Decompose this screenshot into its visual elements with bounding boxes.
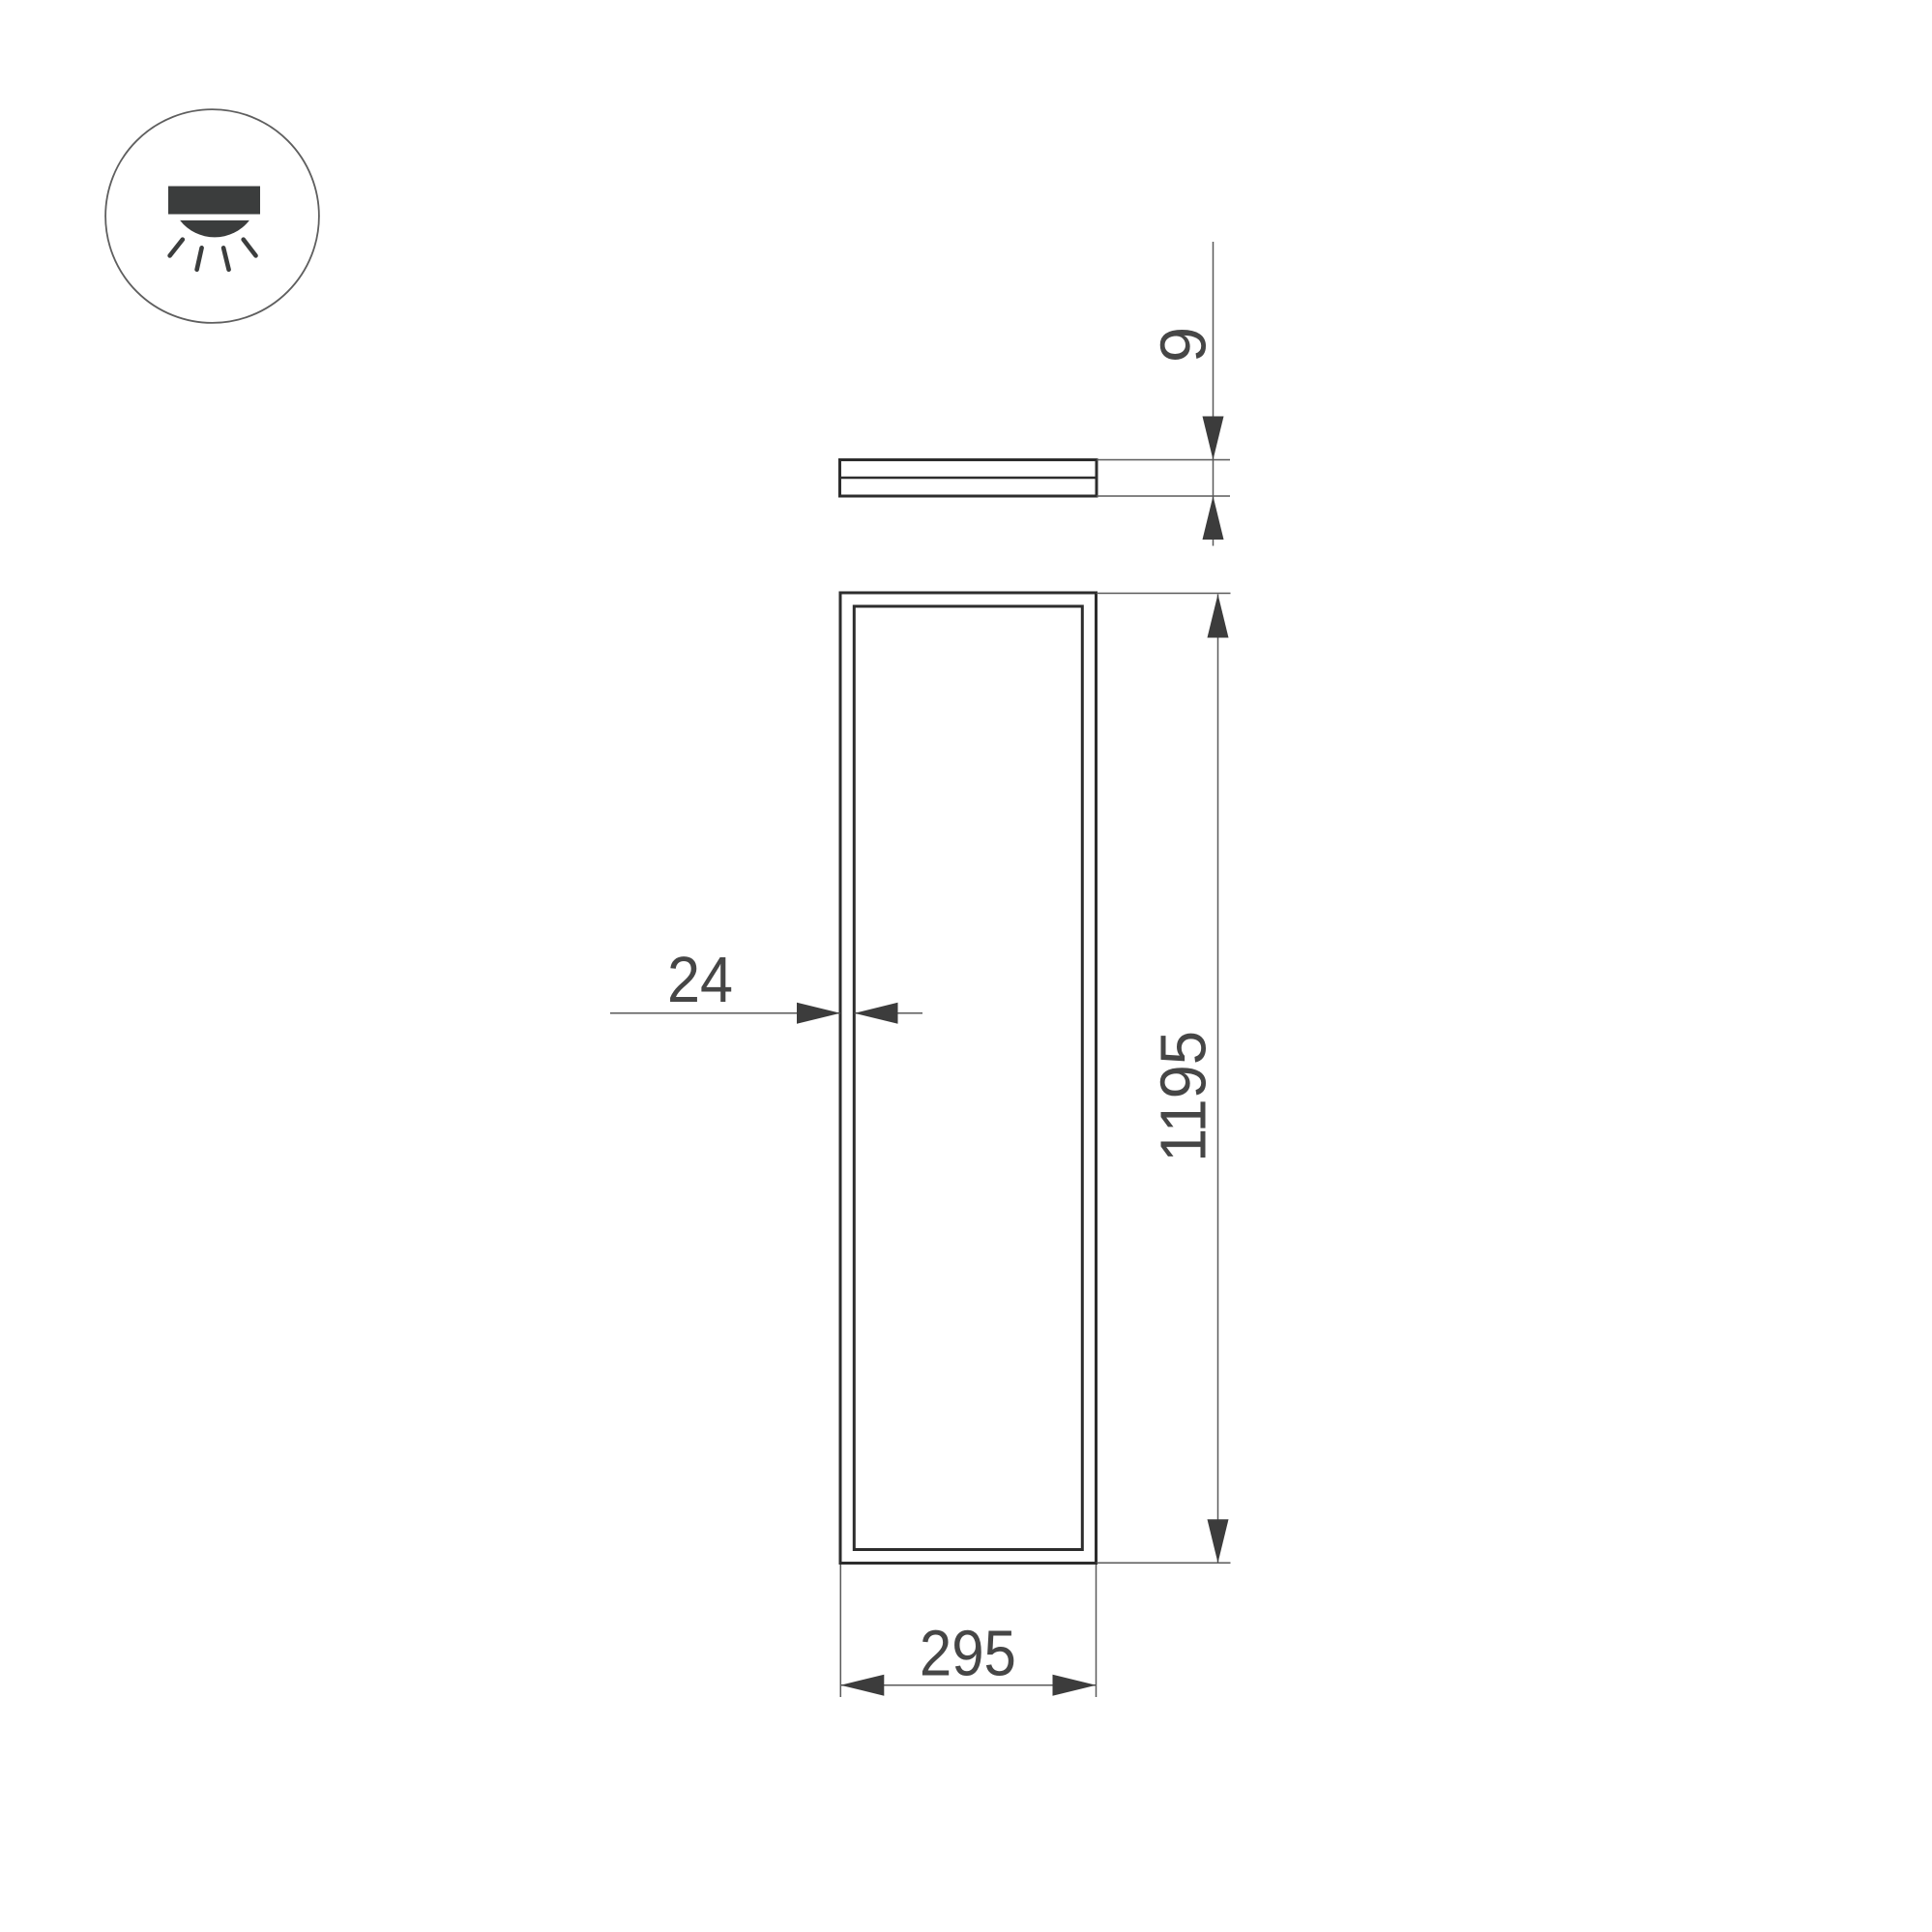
svg-text:9: 9 <box>1148 327 1220 363</box>
svg-text:1195: 1195 <box>1148 1031 1220 1162</box>
svg-text:24: 24 <box>667 944 733 1016</box>
svg-text:295: 295 <box>920 1617 1016 1689</box>
